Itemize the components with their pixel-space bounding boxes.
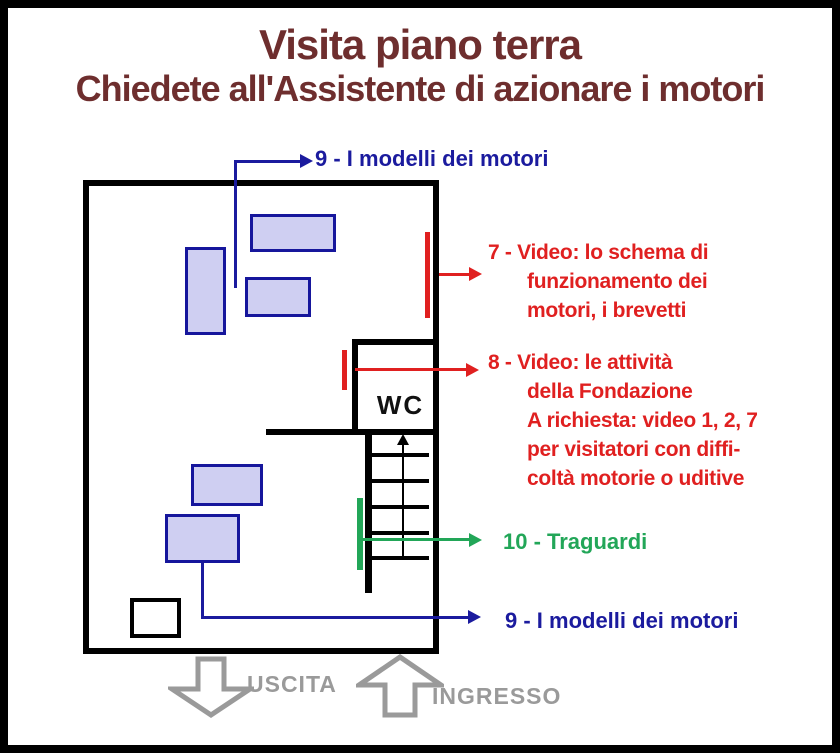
label-video7-line1: 7 - Video: lo schema di	[488, 238, 708, 267]
leader-arrowhead-icon	[469, 267, 482, 281]
label-video7-line2: funzionamento dei	[527, 267, 708, 296]
interior-wall	[266, 429, 439, 435]
stair-tread	[372, 531, 429, 535]
label-traguardi: 10 - Traguardi	[503, 529, 647, 555]
exit-down-arrow-icon	[168, 656, 254, 718]
label-video8: 8 - Video: le attività della Fondazione …	[488, 348, 758, 493]
leader-line	[201, 563, 204, 619]
video8-screen-marker	[342, 350, 347, 390]
leader-arrowhead-icon	[466, 363, 479, 377]
stairs-left-wall	[365, 435, 372, 593]
leader-line	[439, 273, 470, 276]
page-subtitle: Chiedete all'Assistente di azionare i mo…	[0, 68, 840, 110]
model-table-5	[165, 514, 240, 563]
label-video8-line3: A richiesta: video 1, 2, 7	[527, 406, 758, 435]
stair-tread	[372, 479, 429, 483]
label-video8-line1: 8 - Video: le attività	[488, 348, 758, 377]
label-video7-line3: motori, i brevetti	[527, 296, 708, 325]
page-title: Visita piano terra	[0, 22, 840, 68]
stair-tread	[372, 505, 429, 509]
stair-tread	[372, 453, 429, 457]
model-table-3	[245, 277, 311, 317]
white-box	[130, 598, 181, 638]
exit-label: USCITA	[247, 671, 337, 698]
traguardi-marker	[357, 498, 363, 570]
model-table-2	[185, 247, 226, 335]
video7-screen-marker	[425, 232, 430, 318]
model-table-1	[250, 214, 336, 252]
leader-line	[234, 160, 237, 288]
floor-plan-page: Visita piano terra Chiedete all'Assisten…	[0, 0, 840, 753]
leader-arrowhead-icon	[468, 610, 481, 624]
entrance-label: INGRESSO	[432, 683, 561, 710]
leader-line	[234, 160, 301, 163]
leader-line	[355, 368, 467, 371]
label-video8-line2: della Fondazione	[527, 377, 758, 406]
label-video8-line4: per visitatori con diffi-	[527, 435, 758, 464]
title-block: Visita piano terra Chiedete all'Assisten…	[0, 22, 840, 110]
leader-line	[201, 616, 469, 619]
label-models-bottom: 9 - I modelli dei motori	[505, 608, 738, 634]
leader-arrowhead-icon	[300, 154, 313, 168]
stair-tread	[372, 556, 429, 560]
label-video8-line5: coltà motorie o uditive	[527, 464, 758, 493]
leader-line	[360, 538, 470, 541]
leader-arrowhead-icon	[469, 533, 482, 547]
label-video7: 7 - Video: lo schema di funzionamento de…	[488, 238, 708, 325]
wc-label: WC	[377, 390, 424, 421]
wc-room: WC	[352, 339, 439, 435]
stairs-up-arrow-icon	[397, 434, 409, 445]
model-table-4	[191, 464, 263, 506]
entrance-up-arrow-icon	[356, 654, 444, 718]
label-models-top: 9 - I modelli dei motori	[315, 146, 548, 172]
